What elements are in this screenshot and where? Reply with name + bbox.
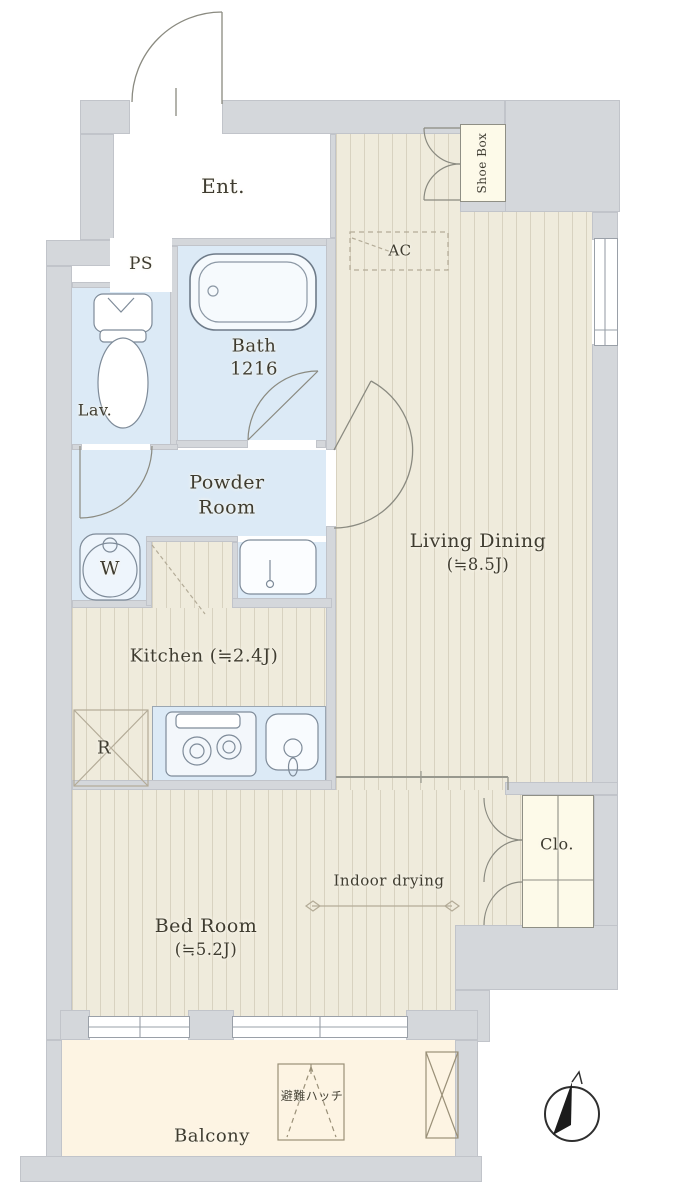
opening-dash [152, 545, 205, 614]
evacuation-hatch-label: 避難ハッチ [281, 1089, 344, 1105]
living-label-line1: Living Dining [410, 529, 546, 554]
ac-label: AC [388, 241, 411, 261]
sliding-partition [336, 771, 508, 790]
bath-label-line2: 1216 [230, 358, 278, 381]
living-dining-label: Living Dining (≒8.5J) [410, 529, 546, 575]
closet-doors [484, 798, 522, 925]
shoe-box-label: Shoe Box [475, 133, 491, 194]
living-door-arc [334, 381, 413, 528]
stove-fixture [166, 712, 256, 776]
washer-label: W [100, 557, 120, 582]
living-label-line2: (≒8.5J) [410, 554, 546, 575]
powder-room-label: Powder Room [189, 470, 264, 519]
bath-label: Bath 1216 [230, 335, 278, 382]
floor-plan: Ent. PS Lav. Bath 1216 Powder Room W Kit… [0, 0, 685, 1200]
closet-dividers [523, 796, 593, 927]
closet-label: Clo. [540, 835, 574, 856]
powder-label-line1: Powder [189, 470, 264, 495]
balcony-label: Balcony [174, 1124, 250, 1147]
bedroom-label: Bed Room (≒5.2J) [155, 914, 258, 960]
pipe-shaft-label: PS [129, 253, 153, 275]
basin-fixture [240, 540, 316, 594]
bathtub-fixture [190, 254, 316, 330]
bedroom-label-line2: (≒5.2J) [155, 939, 258, 960]
entrance-door-arc [132, 12, 222, 116]
compass-icon [545, 1072, 599, 1141]
kitchen-label: Kitchen (≒2.4J) [130, 644, 279, 667]
shoe-box-doors [424, 128, 460, 200]
lavatory-door-arc [80, 446, 152, 518]
bath-label-line1: Bath [230, 335, 278, 358]
indoor-drying-bar [306, 901, 459, 911]
bedroom-label-line1: Bed Room [155, 914, 258, 939]
linework-overlay [0, 0, 685, 1200]
lavatory-label: Lav. [78, 401, 112, 422]
entrance-label: Ent. [201, 173, 245, 199]
sink-fixture [266, 714, 318, 776]
fridge-label: R [97, 736, 111, 759]
indoor-drying-label: Indoor drying [334, 871, 445, 891]
powder-label-line2: Room [189, 495, 264, 520]
balcony-partition [426, 1052, 458, 1138]
